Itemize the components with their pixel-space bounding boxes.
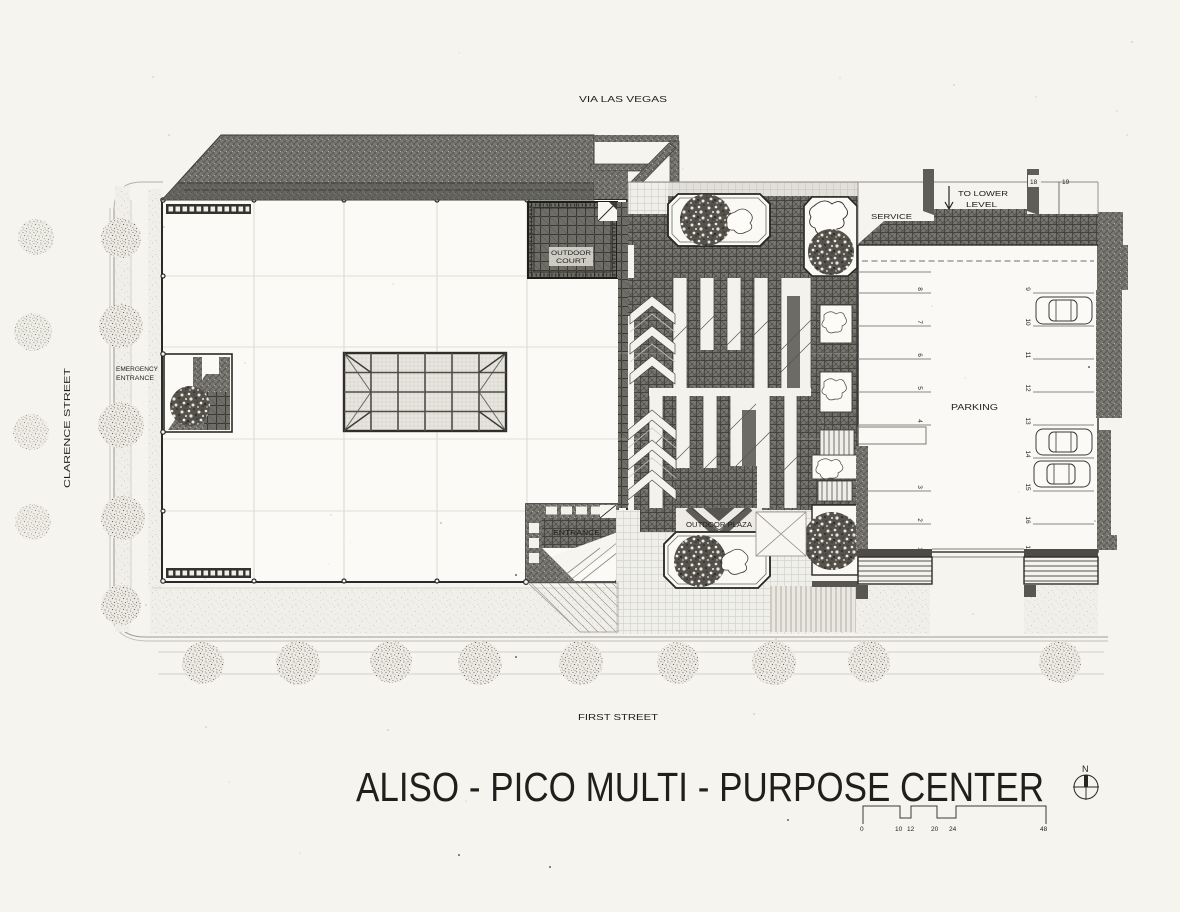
svg-text:ALISO - PICO MULTI - PURPOSE: ALISO - PICO MULTI - PURPOSE CENTER bbox=[356, 764, 1044, 810]
svg-text:VIA LAS VEGAS: VIA LAS VEGAS bbox=[579, 94, 667, 104]
svg-text:7: 7 bbox=[916, 320, 923, 324]
svg-text:14: 14 bbox=[1024, 450, 1031, 458]
svg-text:PARKING: PARKING bbox=[951, 402, 998, 412]
svg-text:ENTRANCE: ENTRANCE bbox=[553, 528, 600, 537]
svg-text:24: 24 bbox=[949, 826, 957, 833]
svg-text:10: 10 bbox=[1024, 318, 1031, 326]
svg-text:10: 10 bbox=[895, 826, 903, 833]
svg-text:TO LOWER: TO LOWER bbox=[958, 189, 1009, 198]
svg-text:6: 6 bbox=[916, 353, 923, 357]
svg-text:9: 9 bbox=[1024, 287, 1031, 291]
svg-text:12: 12 bbox=[907, 826, 915, 833]
svg-text:OUTDOOR: OUTDOOR bbox=[551, 250, 591, 257]
svg-text:SERVICE: SERVICE bbox=[871, 212, 912, 221]
svg-text:12: 12 bbox=[1024, 384, 1031, 392]
svg-text:0: 0 bbox=[860, 826, 864, 833]
svg-text:20: 20 bbox=[931, 826, 939, 833]
svg-text:COURT: COURT bbox=[556, 258, 586, 265]
svg-text:48: 48 bbox=[1040, 826, 1048, 833]
svg-text:5: 5 bbox=[916, 386, 923, 390]
svg-text:OUTDOOR PLAZA: OUTDOOR PLAZA bbox=[686, 522, 752, 529]
svg-text:15: 15 bbox=[1024, 483, 1031, 491]
svg-text:4: 4 bbox=[916, 419, 923, 423]
svg-text:ENTRANCE: ENTRANCE bbox=[116, 375, 155, 382]
svg-text:LEVEL: LEVEL bbox=[966, 200, 997, 209]
svg-text:3: 3 bbox=[916, 485, 923, 489]
svg-text:CLARENCE STREET: CLARENCE STREET bbox=[62, 368, 72, 488]
svg-text:13: 13 bbox=[1024, 417, 1031, 425]
svg-text:19: 19 bbox=[1062, 179, 1070, 186]
svg-text:2: 2 bbox=[916, 518, 923, 522]
svg-text:8: 8 bbox=[916, 287, 923, 291]
svg-text:18: 18 bbox=[1030, 179, 1038, 186]
svg-text:EMERGENCY: EMERGENCY bbox=[116, 366, 159, 373]
svg-text:N: N bbox=[1082, 764, 1089, 774]
svg-text:FIRST STREET: FIRST STREET bbox=[578, 712, 658, 722]
svg-text:16: 16 bbox=[1024, 516, 1031, 524]
svg-text:11: 11 bbox=[1024, 352, 1031, 359]
